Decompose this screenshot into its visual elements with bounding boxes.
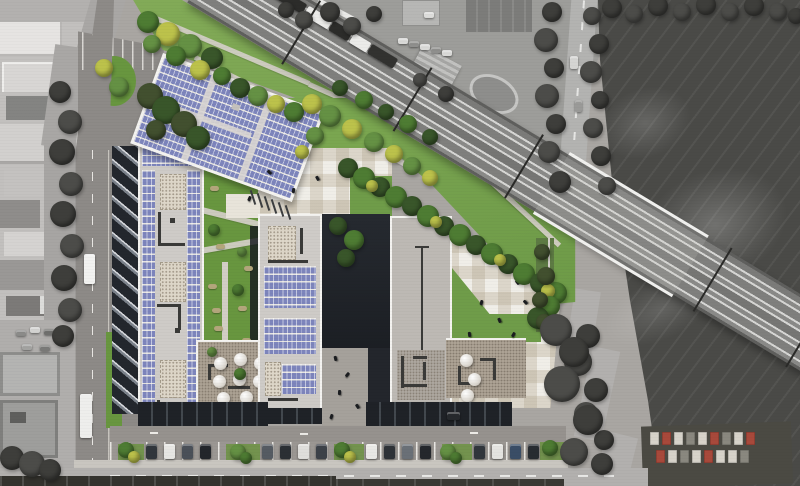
tree: [494, 254, 506, 266]
south-facade-shadow: [268, 408, 322, 424]
car: [510, 444, 521, 459]
roof-gravel-patch: [265, 362, 281, 396]
tree: [422, 129, 438, 145]
car: [492, 444, 503, 459]
tree-grey: [580, 61, 602, 83]
tree-grey: [591, 91, 609, 109]
roof-vent: [170, 218, 175, 223]
car: [298, 444, 309, 459]
skylight-dome: [460, 354, 473, 367]
tree-grey: [413, 73, 427, 87]
south-rooftops: [336, 479, 564, 486]
tree-grey: [320, 2, 340, 22]
roof-joint-line: [415, 246, 429, 248]
car: [200, 444, 211, 459]
roof-gravel-patch: [160, 174, 186, 210]
tree-grey: [39, 459, 61, 481]
car: [84, 254, 95, 284]
shipping-container: [674, 432, 683, 445]
tree-grey: [538, 141, 560, 163]
skylight-dome: [214, 357, 227, 370]
south-facade-shadow: [366, 402, 512, 428]
tree-grey: [49, 139, 75, 165]
tree: [213, 67, 231, 85]
tree-grey: [788, 8, 800, 24]
tree-grey: [673, 3, 691, 21]
rooftop-unit: [10, 412, 26, 423]
drive-marking: [300, 433, 308, 435]
roof-plant: [178, 304, 181, 330]
tree: [342, 119, 362, 139]
shipping-container: [716, 450, 725, 463]
roof-plant: [413, 356, 427, 359]
tree-grey: [591, 146, 611, 166]
tree: [403, 157, 421, 175]
skylight-dome: [234, 353, 247, 366]
tree: [208, 224, 220, 236]
tree: [399, 115, 417, 133]
courtyard-path: [222, 262, 228, 342]
drive-marking: [150, 432, 158, 434]
shipping-container: [650, 432, 659, 445]
aerial-site-plan: [0, 0, 800, 486]
roof-plant: [158, 212, 161, 246]
tree-grey: [60, 234, 84, 258]
shrub: [210, 186, 219, 191]
industrial-road-top: [0, 0, 98, 22]
tree: [267, 95, 285, 113]
tree-grey: [583, 118, 603, 138]
shipping-container: [686, 432, 695, 445]
middle-building-roof: [258, 214, 322, 410]
tree: [319, 105, 341, 127]
tree-grey: [52, 325, 74, 347]
car: [30, 327, 40, 333]
rooftop-unit: [231, 103, 241, 111]
car: [528, 444, 539, 459]
roof-plant: [493, 358, 496, 380]
rooftop-solar-array: [264, 318, 316, 354]
tree: [207, 347, 217, 357]
tree-grey: [584, 378, 608, 402]
tree: [355, 91, 373, 109]
car: [16, 330, 26, 336]
tree: [337, 249, 355, 267]
tree: [95, 59, 113, 77]
tree: [143, 35, 161, 53]
car: [280, 444, 291, 459]
shipping-container: [746, 432, 755, 445]
west-building-roof: [138, 126, 204, 418]
car: [474, 444, 485, 459]
roof-plant: [268, 398, 298, 401]
car: [80, 394, 92, 438]
car: [575, 100, 582, 112]
roof-plant: [268, 260, 308, 263]
shipping-container: [734, 432, 743, 445]
tree: [542, 440, 558, 456]
tree: [329, 217, 347, 235]
tree-grey: [438, 86, 454, 102]
shrub: [214, 326, 223, 331]
tree: [306, 127, 324, 145]
car: [398, 38, 408, 44]
tree-grey: [51, 265, 77, 291]
roof-plant: [401, 384, 427, 387]
shipping-container: [722, 432, 731, 445]
shipping-container: [692, 450, 701, 463]
drive-marking: [470, 432, 478, 434]
shipping-container: [662, 432, 671, 445]
tree: [190, 60, 210, 80]
tree: [385, 145, 403, 163]
tree: [240, 452, 252, 464]
pedestrian: [468, 332, 471, 337]
roof-plant: [423, 362, 426, 380]
tree: [284, 102, 304, 122]
tree: [248, 86, 268, 106]
car: [447, 412, 460, 420]
car: [146, 444, 157, 459]
tree: [230, 78, 250, 98]
warehouse-roof: [0, 200, 40, 228]
tree: [109, 77, 129, 97]
catenary-mast: [785, 303, 800, 367]
shrub: [216, 244, 225, 249]
tree: [295, 145, 309, 159]
tree-grey: [583, 7, 601, 25]
tree: [344, 451, 356, 463]
tree-grey: [58, 110, 82, 134]
tree-grey: [544, 366, 580, 402]
tree: [234, 368, 246, 380]
tree: [364, 132, 384, 152]
shipping-container: [704, 450, 713, 463]
tree-grey: [546, 114, 566, 134]
roof-plant: [228, 386, 250, 389]
roof-vent: [175, 328, 180, 333]
shipping-container: [728, 450, 737, 463]
warehouse-roof: [6, 96, 50, 120]
skylight-roof-east: [446, 338, 526, 398]
catenary-mast: [504, 134, 543, 198]
tree-grey: [573, 405, 603, 435]
shrub: [212, 308, 221, 313]
car: [262, 444, 273, 459]
rooftop-solar-array: [264, 266, 316, 308]
roof-lower-pad: [397, 350, 445, 400]
tree: [128, 451, 140, 463]
tree: [450, 452, 462, 464]
shrub: [238, 306, 247, 311]
shipping-container: [656, 450, 665, 463]
tree-grey: [559, 337, 589, 367]
tree: [378, 104, 394, 120]
skylight-dome: [213, 375, 226, 388]
roof-plant: [300, 228, 303, 254]
car: [431, 47, 441, 53]
tree: [232, 284, 244, 296]
car: [570, 56, 578, 69]
tree-grey: [625, 5, 643, 23]
tree-grey: [721, 3, 739, 21]
tree-grey: [589, 34, 609, 54]
shipping-container: [668, 450, 677, 463]
tree-grey: [542, 2, 562, 22]
shipping-container: [698, 432, 707, 445]
tree-grey: [594, 430, 614, 450]
tree: [186, 126, 210, 150]
tree-grey: [598, 177, 616, 195]
tree: [332, 80, 348, 96]
car: [420, 44, 430, 50]
car: [420, 444, 431, 459]
car: [22, 344, 32, 350]
shrub: [244, 266, 253, 271]
tree: [366, 180, 378, 192]
tree-grey: [366, 6, 382, 22]
skylight-dome: [468, 373, 481, 386]
shrub: [208, 284, 217, 289]
south-facade-shadow: [138, 402, 268, 426]
catenary-mast: [693, 247, 732, 311]
roof-joint-line: [421, 248, 423, 356]
tree-grey: [769, 3, 787, 21]
tree-grey: [278, 2, 294, 18]
tree-grey: [59, 172, 83, 196]
tree-grey: [535, 84, 559, 108]
tree-grey: [549, 171, 571, 193]
tree-grey: [50, 201, 76, 227]
car: [366, 444, 377, 459]
paved-court: [226, 194, 260, 218]
tree: [422, 170, 438, 186]
car: [442, 50, 452, 56]
roof-plant: [208, 364, 211, 380]
car: [182, 444, 193, 459]
car: [402, 444, 413, 459]
pedestrian: [338, 390, 341, 395]
skylight-dome: [461, 389, 474, 402]
warehouse-roof: [2, 62, 56, 92]
car: [384, 444, 395, 459]
tree-grey: [544, 58, 564, 78]
car: [316, 444, 327, 459]
building-roof-sw: [0, 352, 60, 396]
shipping-container: [710, 432, 719, 445]
tree: [166, 46, 186, 66]
roof-gravel-patch: [160, 262, 186, 302]
tree-grey: [58, 298, 82, 322]
dark-building-roof: [466, 0, 532, 32]
roof-gravel-patch: [268, 226, 296, 260]
tree: [146, 120, 166, 140]
car: [40, 345, 50, 351]
tree-grey: [343, 17, 361, 35]
car: [424, 12, 434, 18]
roof-plant: [158, 243, 185, 246]
warehouse-roof: [0, 22, 62, 56]
tree-grey: [560, 438, 588, 466]
tree: [430, 216, 442, 228]
warehouse-roof: [0, 260, 46, 290]
tree: [534, 244, 550, 260]
tree-grey: [295, 11, 313, 29]
tree-grey: [49, 81, 71, 103]
right-building-roof: [390, 216, 452, 406]
tree: [532, 292, 548, 308]
rooftop-solar-array: [282, 364, 316, 394]
warehouse-roof: [4, 232, 48, 256]
shipping-container: [680, 450, 689, 463]
tree: [344, 230, 364, 250]
roof-gravel-patch: [160, 360, 186, 398]
tree-grey: [591, 453, 613, 475]
shipping-container: [740, 450, 749, 463]
tree: [237, 247, 247, 257]
car: [409, 41, 419, 47]
west-building-facade: [112, 146, 139, 414]
shed-roof: [402, 0, 440, 26]
rooftop-solar-array: [142, 170, 155, 412]
car: [164, 444, 175, 459]
tree: [537, 267, 555, 285]
tree-grey: [534, 28, 558, 52]
